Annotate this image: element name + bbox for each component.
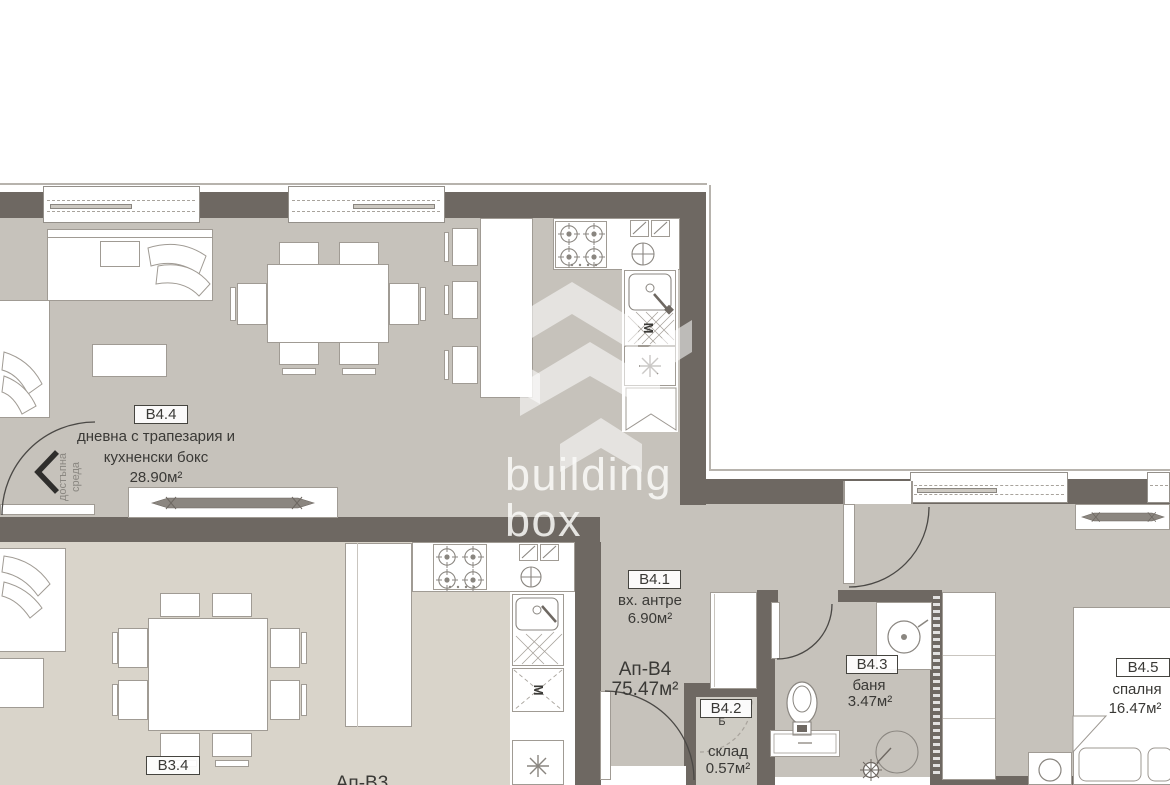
room-id-bedroom: B4.5: [1116, 658, 1170, 677]
bar-stool: [452, 281, 478, 319]
room-id-bathroom: B4.3: [846, 655, 898, 674]
wardrobe: [942, 592, 996, 780]
corner-cabinet: [630, 220, 649, 237]
stove-neighbor: [433, 544, 487, 590]
coffee-table-neighbor: [0, 658, 44, 708]
wardrobe-rail: [933, 596, 940, 776]
window-bedroom: [1147, 472, 1170, 503]
fridge-cabinet: [345, 543, 412, 727]
corner-cabinet: [540, 544, 559, 561]
dining-table-neighbor: [148, 618, 268, 731]
facade-line-top: [0, 183, 707, 185]
apartment-name: Ап-В4: [590, 659, 700, 680]
door-leaf-bathroom: [771, 602, 780, 659]
room-area-living: 28.90м²: [56, 469, 256, 487]
dishwasher: [624, 346, 676, 386]
apartment-area: 75.47м²: [585, 679, 705, 700]
chair-seat-line: [282, 368, 316, 375]
room-name-storage: склад: [694, 743, 762, 761]
stove: [555, 221, 607, 268]
chair-seat-line: [342, 368, 376, 375]
bar-stool: [452, 228, 478, 266]
dining-chair: [389, 283, 419, 325]
chair-back: [301, 632, 307, 664]
sofa-neighbor: [0, 548, 66, 652]
doorway-entrance-gap: [601, 766, 686, 785]
facade-line-right-vertical: [709, 185, 711, 471]
kitchen-island: [480, 218, 533, 398]
hall-wardrobe: [710, 592, 757, 689]
facade-line-right-horizontal: [709, 469, 1170, 471]
sofa-cushion: [100, 241, 140, 267]
kitchen-sink-unit-neighbor: [512, 594, 564, 666]
door-leaf-entrance: [600, 691, 611, 780]
dining-table: [267, 264, 389, 343]
room-area-bathroom: 3.47м²: [838, 693, 902, 711]
sofa-left-section: [0, 300, 50, 418]
chair-back: [112, 632, 118, 664]
chair-seat-line: [215, 760, 249, 767]
storage-tag: Б: [712, 716, 732, 728]
dining-chair: [339, 341, 379, 365]
chair-back: [301, 684, 307, 716]
door-leaf-terrace: [843, 504, 855, 584]
dining-chair: [212, 593, 252, 617]
wall-kitchen-right: [680, 218, 706, 505]
radiator-panel: [1075, 504, 1170, 530]
coffee-table: [92, 344, 167, 377]
bar-stool: [452, 346, 478, 384]
dishwasher-neighbor: [512, 740, 564, 785]
dining-chair: [237, 283, 267, 325]
cabinet-divider-line: [357, 543, 358, 727]
floor-plan: M M: [0, 0, 1170, 785]
dining-chair: [279, 341, 319, 365]
watermark-line2: box: [505, 498, 582, 543]
corner-cabinet: [519, 544, 538, 561]
stool-back: [444, 285, 449, 315]
wall-bath-top-left: [757, 590, 778, 602]
room-area-hall: 6.90м²: [600, 610, 700, 628]
hall-wardrobe-line: [714, 594, 715, 687]
washing-machine-unit: [512, 668, 564, 712]
dining-chair: [339, 242, 379, 266]
chair-back: [230, 287, 236, 321]
watermark-line1: building: [505, 452, 672, 497]
wardrobe-divider: [943, 718, 995, 719]
room-area-storage: 0.57м²: [690, 760, 766, 778]
dining-chair: [279, 242, 319, 266]
nightstand: [1028, 752, 1072, 785]
corner-cabinet: [651, 220, 670, 237]
chair-back: [112, 684, 118, 716]
dining-chair: [160, 593, 200, 617]
dining-chair: [270, 680, 300, 720]
accessibility-line1: достъпна: [57, 437, 70, 517]
accessibility-line2: среда: [70, 437, 83, 517]
wall-bath-top-right: [838, 590, 942, 602]
room-name-bedroom: спалня: [1104, 681, 1170, 699]
room-id-living: B4.4: [134, 405, 188, 424]
room-name-living-line2: кухненски бокс: [56, 449, 256, 467]
chair-back: [420, 287, 426, 321]
doorway-terrace-gap: [843, 481, 913, 504]
room-name-living-line1: дневна с трапезария и: [56, 428, 256, 446]
dining-chair: [270, 628, 300, 668]
kitchen-sink-unit: [624, 270, 676, 346]
dining-chair: [160, 733, 200, 757]
wardrobe-divider: [943, 655, 995, 656]
room-id-hall: B4.1: [628, 570, 681, 589]
bath-vanity: [770, 730, 840, 757]
neighbor-apartment-name: Ап-В3: [322, 773, 402, 785]
window-living-1: [43, 186, 200, 223]
dining-chair: [212, 733, 252, 757]
tv-console: [128, 487, 338, 518]
room-name-hall: вх. антре: [600, 592, 700, 610]
room-area-bedroom: 16.47м²: [1098, 700, 1170, 718]
window-corridor: [910, 472, 1068, 503]
stool-back: [444, 232, 449, 262]
dining-chair: [118, 628, 148, 668]
window-living-2: [288, 186, 445, 223]
room-id-neighbor: B3.4: [146, 756, 200, 775]
dining-chair: [118, 680, 148, 720]
stool-back: [444, 350, 449, 380]
accessibility-note: достъпна среда: [57, 437, 85, 517]
